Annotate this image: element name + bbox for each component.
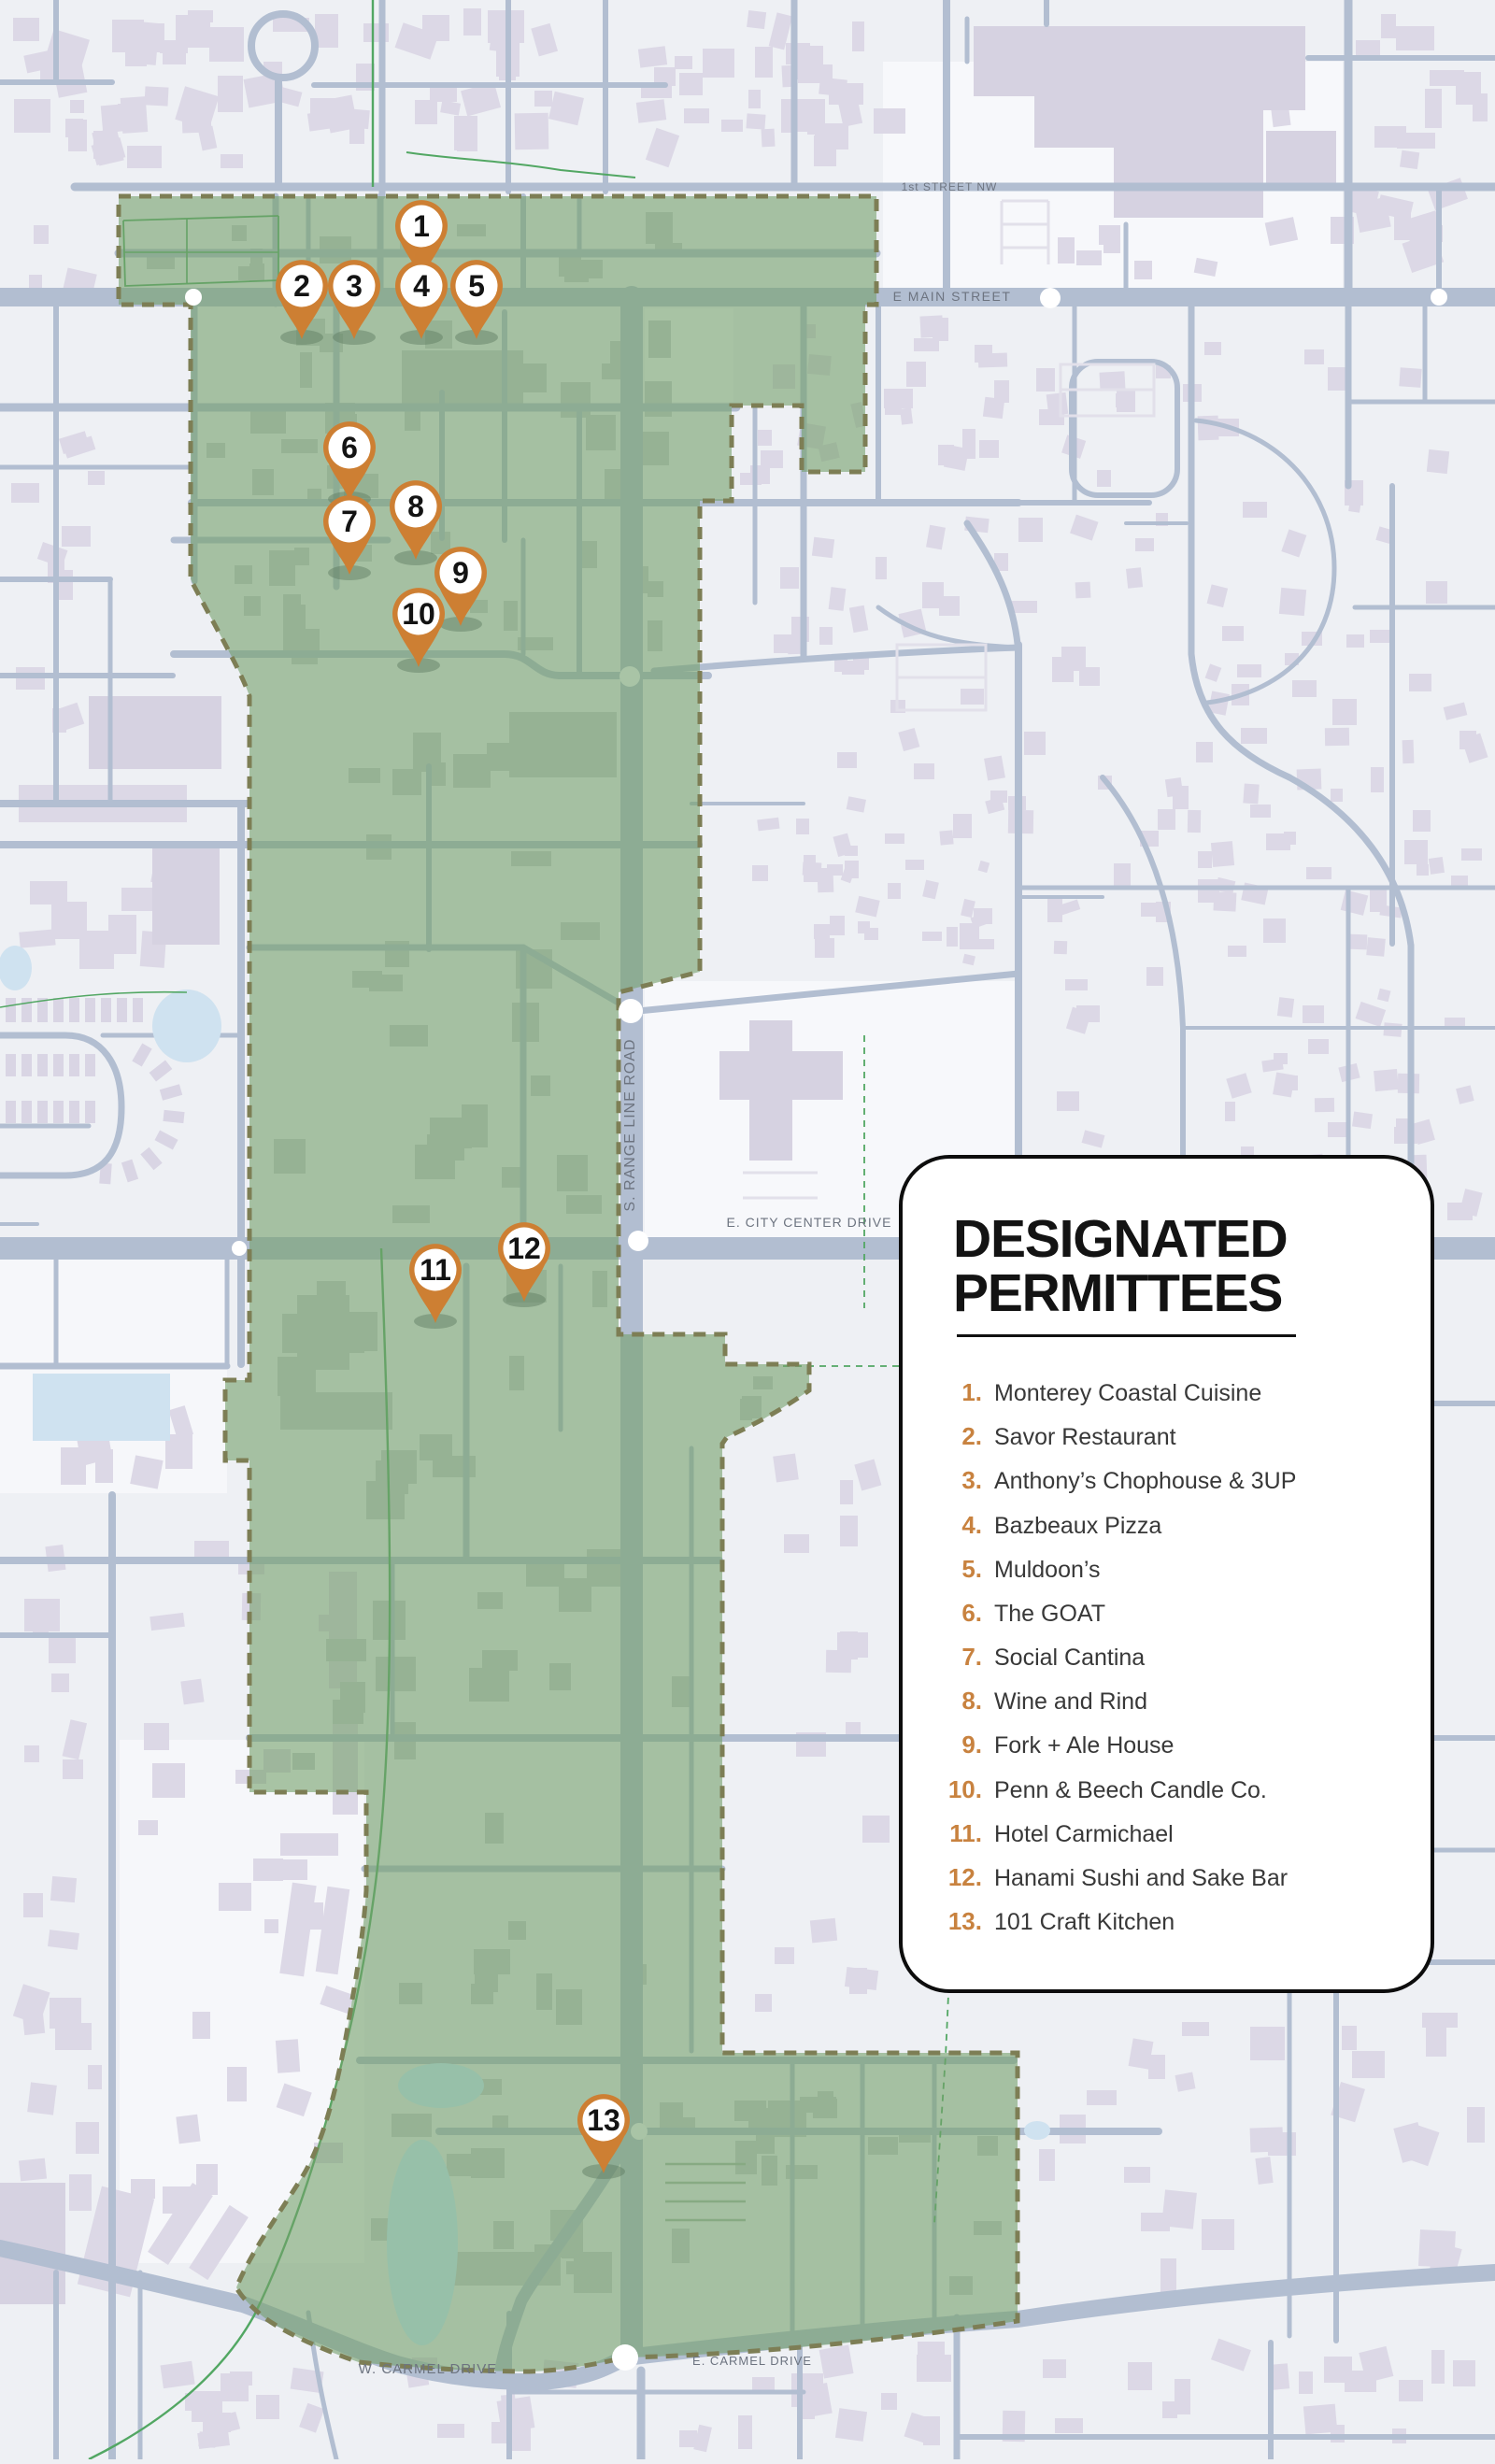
- svg-text:1st STREET NW: 1st STREET NW: [902, 180, 998, 193]
- svg-text:9.: 9.: [961, 1730, 982, 1759]
- svg-text:Anthony’s Chophouse & 3UP: Anthony’s Chophouse & 3UP: [994, 1468, 1296, 1494]
- svg-text:1.: 1.: [961, 1378, 982, 1406]
- svg-text:PERMITTEES: PERMITTEES: [953, 1263, 1282, 1323]
- svg-text:3.: 3.: [961, 1466, 982, 1494]
- svg-text:6.: 6.: [961, 1599, 982, 1627]
- svg-text:Bazbeaux Pizza: Bazbeaux Pizza: [994, 1513, 1161, 1539]
- svg-text:Fork + Ale House: Fork + Ale House: [994, 1732, 1174, 1759]
- svg-text:101 Craft Kitchen: 101 Craft Kitchen: [994, 1909, 1175, 1935]
- svg-text:Hotel Carmichael: Hotel Carmichael: [994, 1821, 1174, 1847]
- svg-text:6: 6: [341, 431, 358, 464]
- svg-text:8.: 8.: [961, 1687, 982, 1715]
- svg-text:Social Cantina: Social Cantina: [994, 1645, 1145, 1671]
- svg-text:11.: 11.: [949, 1819, 982, 1847]
- svg-text:Savor Restaurant: Savor Restaurant: [994, 1424, 1176, 1450]
- svg-text:8: 8: [407, 490, 424, 523]
- svg-text:The GOAT: The GOAT: [994, 1601, 1105, 1627]
- svg-text:10: 10: [402, 597, 435, 631]
- svg-text:9: 9: [452, 556, 469, 590]
- svg-text:E. CITY CENTER DRIVE: E. CITY CENTER DRIVE: [727, 1215, 892, 1230]
- svg-text:Muldoon’s: Muldoon’s: [994, 1557, 1101, 1583]
- svg-text:DESIGNATED: DESIGNATED: [953, 1209, 1287, 1269]
- svg-text:W. CARMEL DRIVE: W. CARMEL DRIVE: [359, 2361, 498, 2377]
- svg-text:1: 1: [413, 209, 430, 243]
- svg-text:5: 5: [468, 269, 485, 303]
- svg-text:12.: 12.: [948, 1863, 982, 1891]
- svg-text:Hanami Sushi and Sake Bar: Hanami Sushi and Sake Bar: [994, 1865, 1288, 1891]
- svg-text:E. CARMEL DRIVE: E. CARMEL DRIVE: [692, 2354, 812, 2368]
- svg-text:11: 11: [420, 1253, 451, 1287]
- svg-text:S. RANGE LINE ROAD: S. RANGE LINE ROAD: [622, 1038, 638, 1211]
- svg-text:10.: 10.: [948, 1775, 982, 1803]
- svg-text:Penn & Beech Candle Co.: Penn & Beech Candle Co.: [994, 1777, 1267, 1803]
- svg-text:E MAIN STREET: E MAIN STREET: [893, 289, 1012, 304]
- svg-text:7.: 7.: [961, 1643, 982, 1671]
- svg-text:4: 4: [413, 269, 430, 303]
- svg-text:Monterey Coastal Cuisine: Monterey Coastal Cuisine: [994, 1380, 1261, 1406]
- svg-text:13.: 13.: [948, 1907, 982, 1935]
- svg-text:Wine and Rind: Wine and Rind: [994, 1688, 1147, 1715]
- svg-text:5.: 5.: [961, 1555, 982, 1583]
- svg-text:12: 12: [507, 1232, 541, 1265]
- svg-text:4.: 4.: [961, 1511, 982, 1539]
- svg-text:3: 3: [346, 269, 363, 303]
- svg-text:7: 7: [341, 505, 358, 538]
- svg-text:2.: 2.: [961, 1422, 982, 1450]
- svg-text:2: 2: [293, 269, 310, 303]
- svg-text:13: 13: [587, 2103, 620, 2137]
